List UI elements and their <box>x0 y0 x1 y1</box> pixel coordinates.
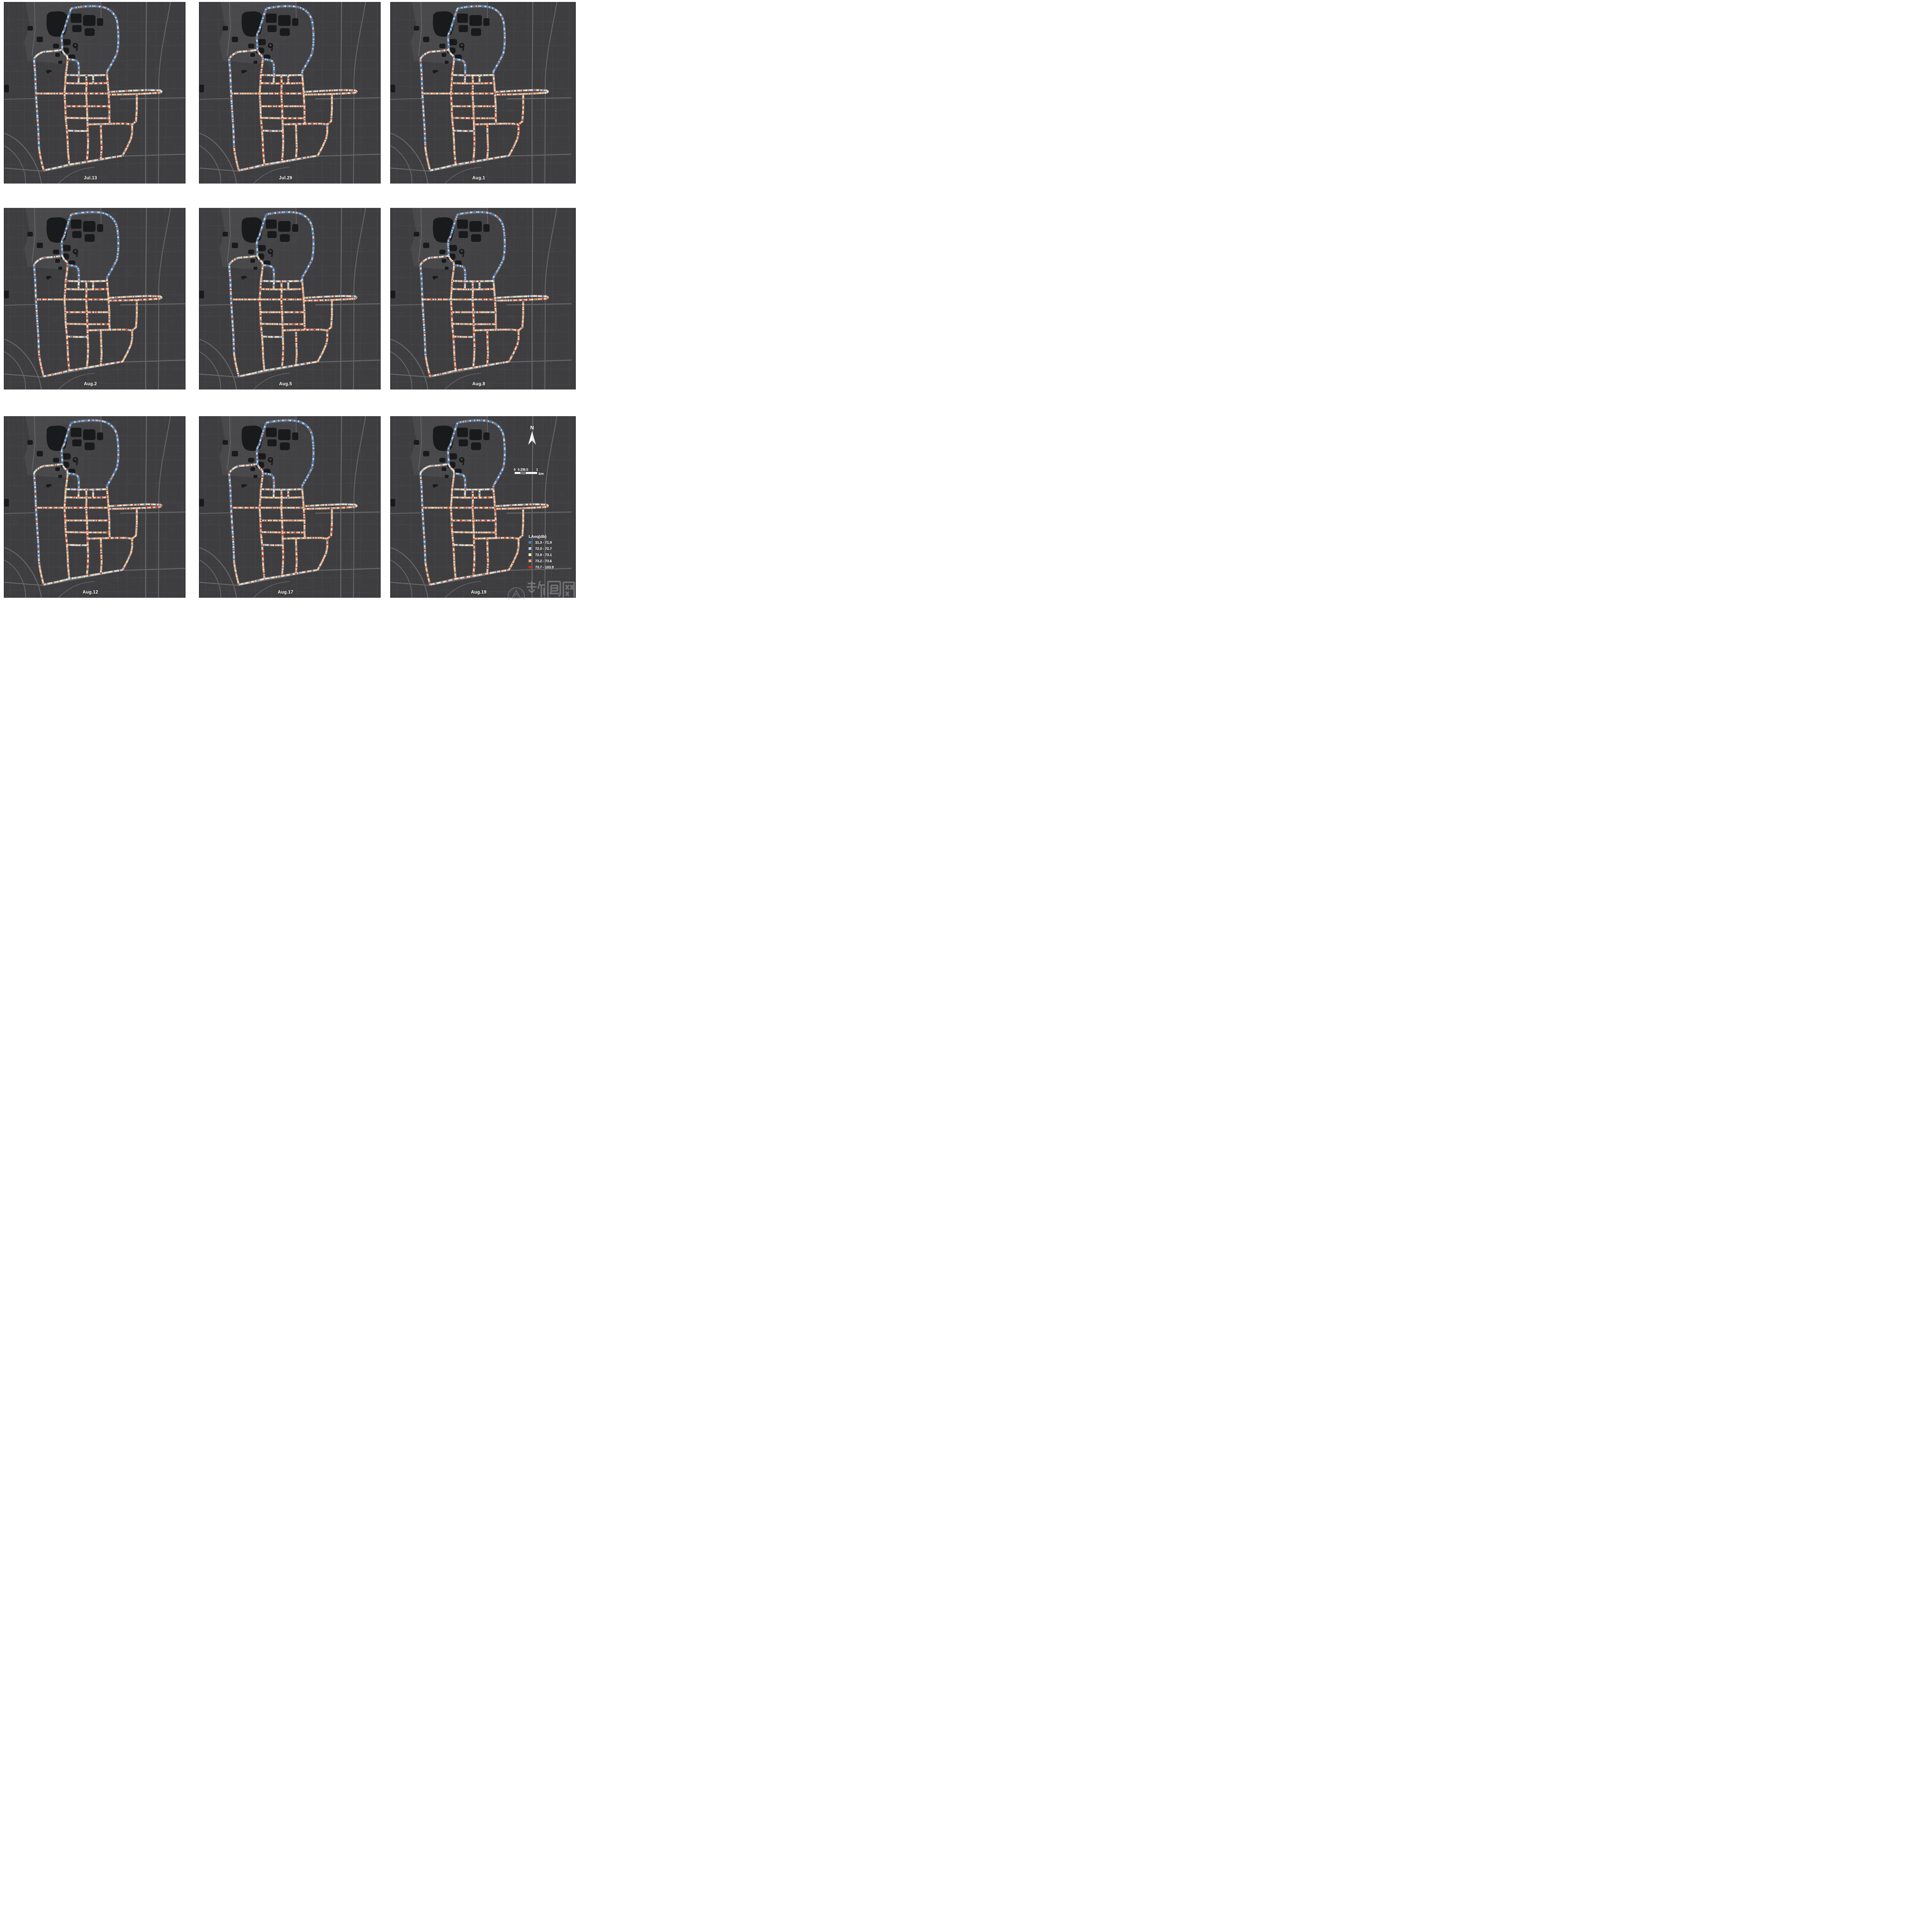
scale-bar-segment <box>520 473 526 474</box>
legend-swatch <box>529 566 531 568</box>
legend-item: 72.0 - 72.7 <box>529 547 554 550</box>
scale-bar: 0 0.25 0.5 1 km <box>512 467 552 477</box>
north-arrow-right <box>532 431 536 445</box>
panel-date-label: Aug.19 <box>391 590 567 595</box>
map-panel-aug2: Aug.2 <box>4 208 185 389</box>
scale-tick: 0 <box>514 468 516 471</box>
map-panel-aug1: Aug.1 <box>390 2 576 184</box>
north-arrow-left <box>528 431 532 445</box>
noise-map <box>199 416 380 598</box>
legend-item: 72.8 - 73.1 <box>529 553 554 556</box>
noise-map <box>391 2 571 184</box>
legend-swatch <box>529 553 531 556</box>
scale-unit: km <box>539 472 544 476</box>
legend-item: 73.2 - 73.6 <box>529 560 554 562</box>
map-panel-aug17: Aug.17 <box>199 416 381 598</box>
map-panel-aug5: Aug.5 <box>199 208 381 389</box>
panel-date-label: Aug.8 <box>391 382 567 386</box>
legend-item: 73.7 - 103.9 <box>529 566 554 568</box>
north-arrow: N <box>527 425 537 446</box>
noise-map <box>4 2 185 184</box>
noise-map <box>391 208 571 389</box>
panel-date-label: Jul.13 <box>4 176 177 180</box>
noise-map <box>4 416 185 598</box>
legend-swatch <box>529 541 531 544</box>
legend-item: 31.3 - 71.9 <box>529 541 554 544</box>
panel-date-label: Aug.1 <box>391 176 567 180</box>
panel-date-label: Aug.2 <box>4 382 177 386</box>
legend-swatch <box>529 547 531 550</box>
panel-date-label: Jul.29 <box>199 176 372 180</box>
scale-tick: 1 <box>536 468 538 471</box>
legend-title: LAeq(db) <box>529 534 554 539</box>
panel-date-label: Aug.17 <box>199 590 372 595</box>
noise-map <box>199 2 380 184</box>
map-panel-aug8: Aug.8 <box>390 208 576 389</box>
legend: LAeq(db) 31.3 - 71.9 72.0 - 72.7 72.8 - … <box>529 534 554 572</box>
panel-date-label: Aug.5 <box>199 382 372 386</box>
map-panel-aug12: Aug.12 <box>4 416 185 598</box>
map-panel-jul13: Jul.13 <box>4 2 185 184</box>
map-panel-jul29: Jul.29 <box>199 2 381 184</box>
legend-swatch <box>529 560 531 562</box>
north-label: N <box>530 425 534 430</box>
scale-tick: 0.5 <box>524 468 528 471</box>
noise-map <box>4 208 185 389</box>
scale-tick: 0.25 <box>518 468 524 471</box>
noise-map <box>199 208 380 389</box>
panel-date-label: Aug.12 <box>4 590 177 595</box>
map-panel-aug19: Aug.19 N 0 0.25 0.5 1 km LAeq(db) 31.3 -… <box>390 416 576 598</box>
